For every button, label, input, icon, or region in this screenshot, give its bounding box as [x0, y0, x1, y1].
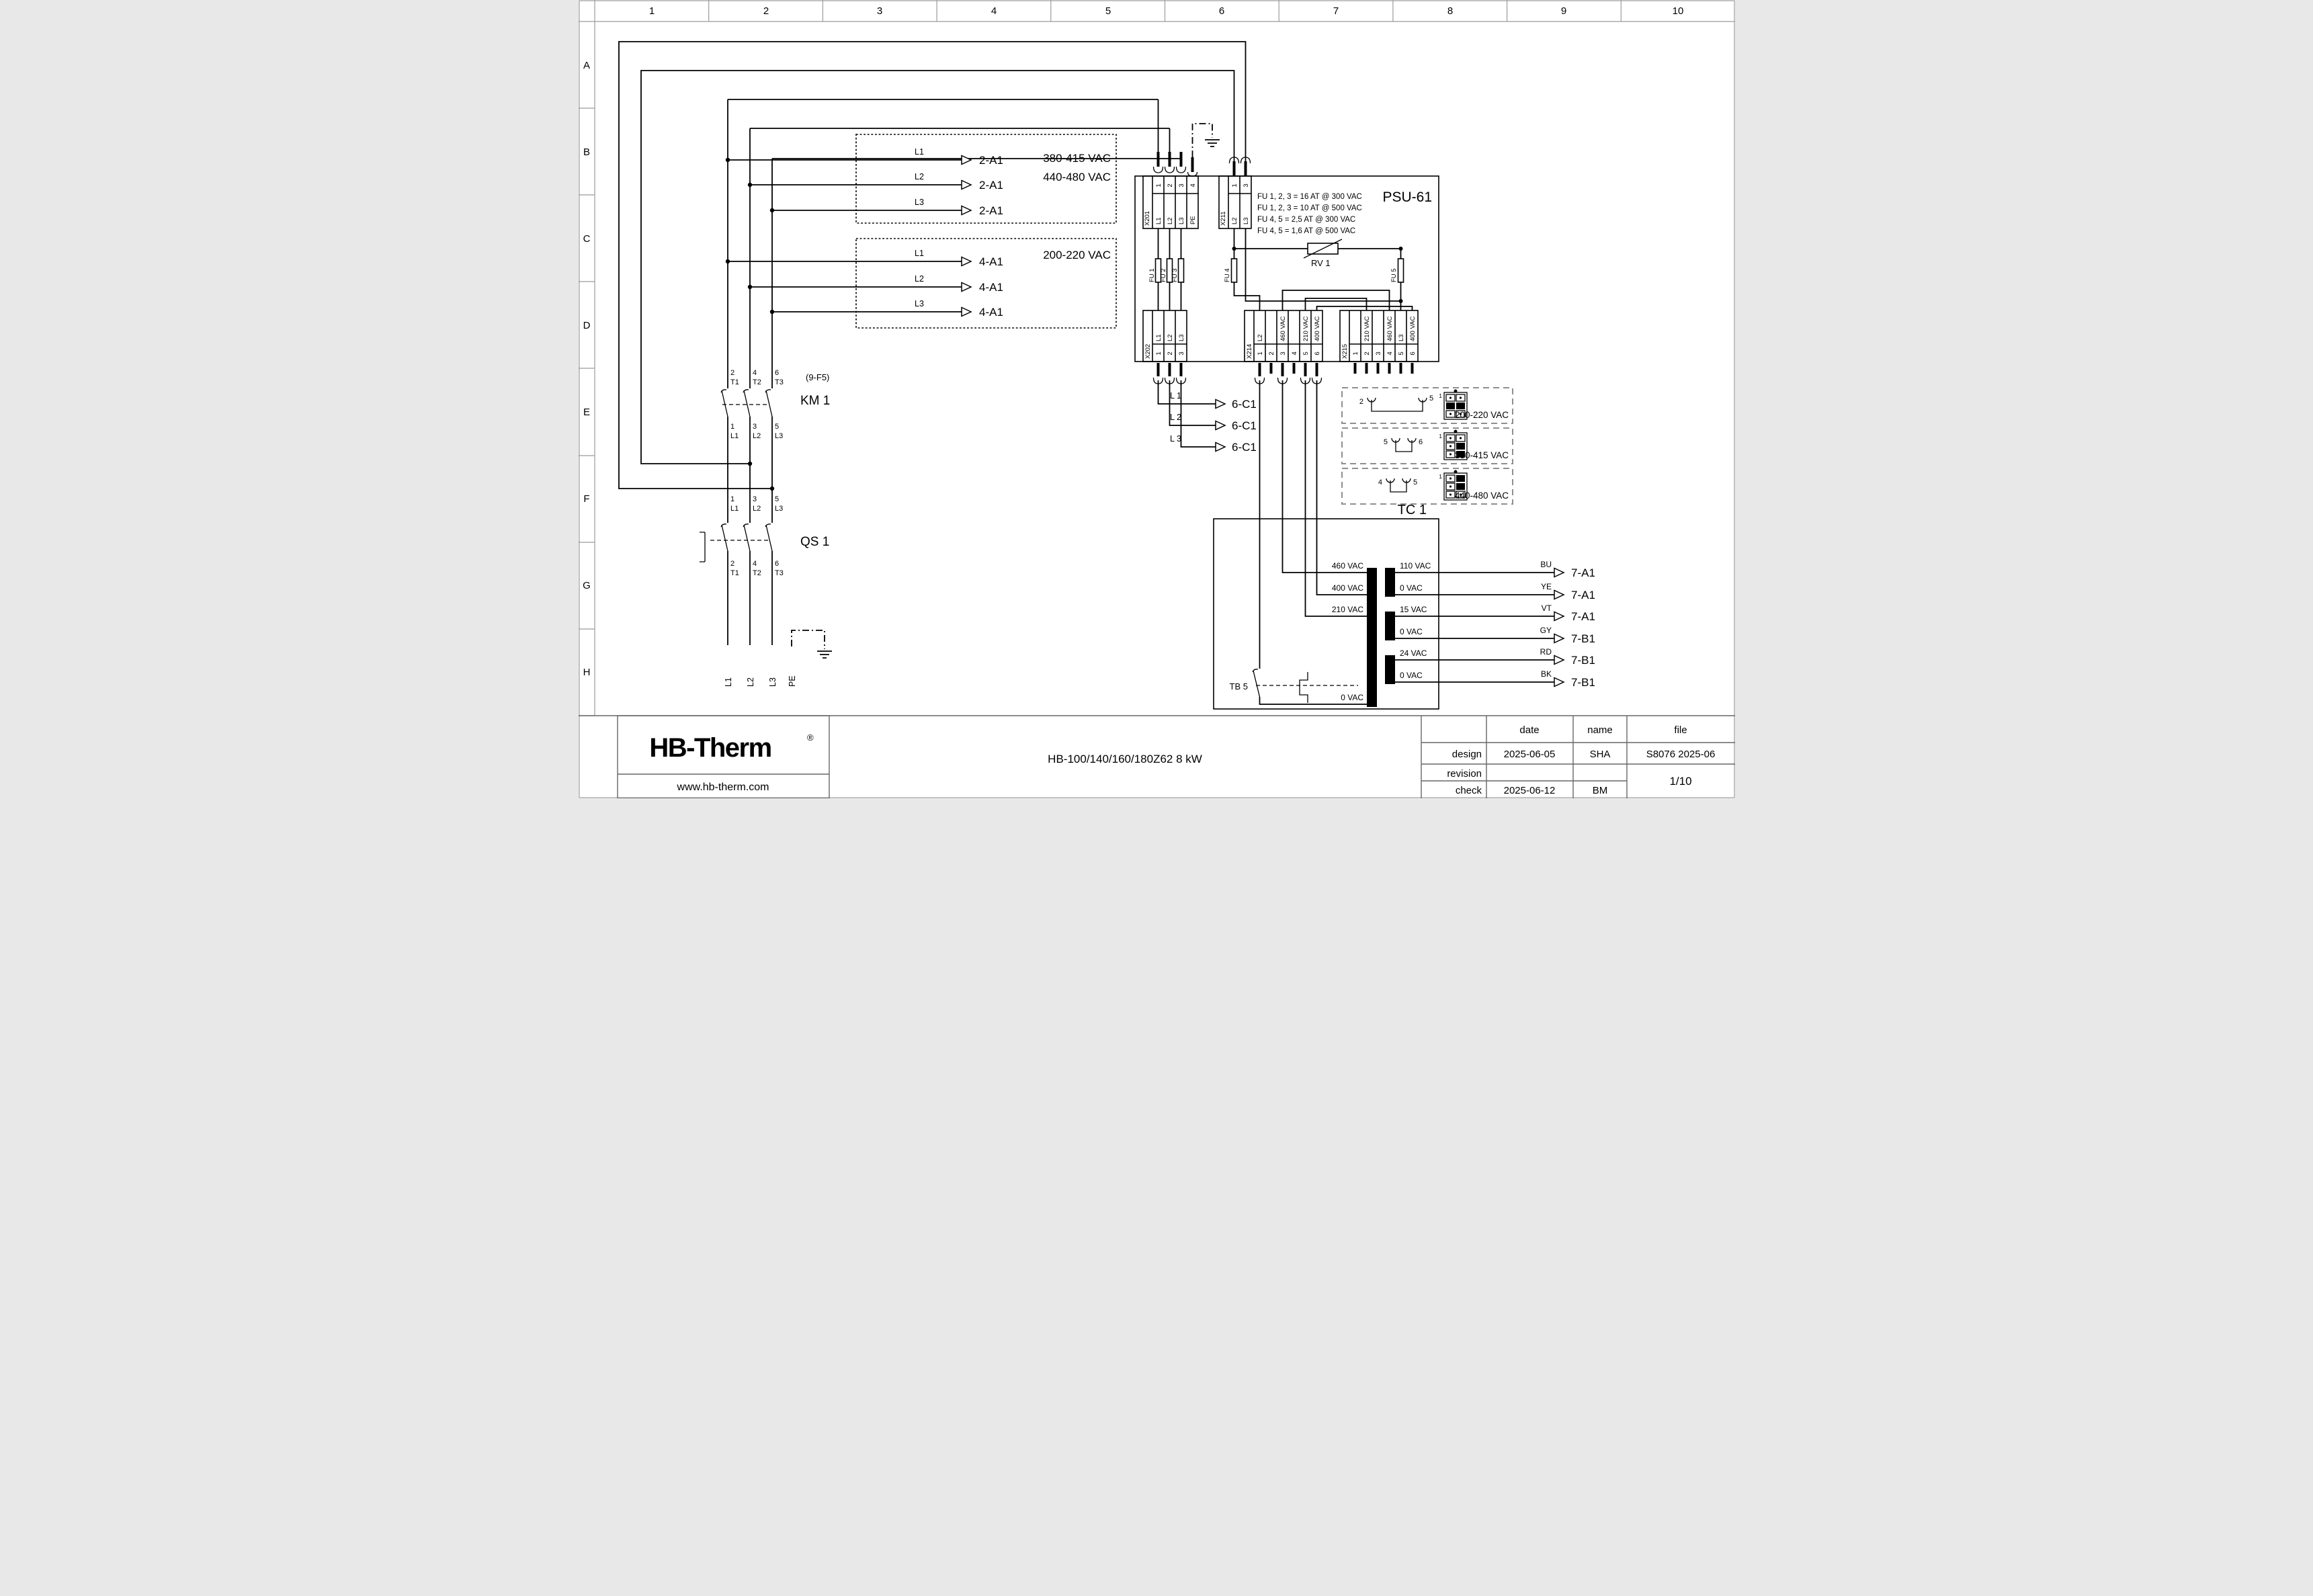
ref-box-4a1: L1 L2 L3 4-A1 4-A1 4-A1 200-220 VAC [856, 239, 1116, 328]
target-ref: 6-C1 [1232, 419, 1257, 432]
jumper-pin: 5 [1413, 478, 1417, 487]
pin-number: 1 [1155, 351, 1163, 355]
secondary-tap: 15 VAC [1400, 605, 1427, 614]
wire-color: GY [1540, 626, 1551, 635]
col-label-9: 9 [1560, 5, 1566, 17]
col-label-1: 1 [648, 5, 654, 17]
line-label: L 2 [1170, 413, 1181, 422]
secondary-tap: 110 VAC [1400, 561, 1431, 571]
pin-number: 4 [1291, 351, 1298, 355]
page-number: 1/10 [1669, 775, 1691, 788]
jumper-pin: 5 [1383, 438, 1387, 446]
qs1-pin-label: T2 [753, 569, 761, 577]
row-label-d: D [583, 320, 590, 331]
pin-number: 3 [1243, 183, 1250, 187]
line-label: L2 [915, 172, 924, 181]
jumper-voltage: 440-480 VAC [1454, 491, 1508, 501]
col-label-3: 3 [876, 5, 882, 17]
pin-label: 460 VAC [1386, 317, 1394, 341]
bridge-210 [1305, 298, 1366, 310]
tb5-label: TB 5 [1229, 681, 1247, 691]
target-ref: 7-A1 [1571, 589, 1595, 601]
primary-tap: 400 VAC [1331, 583, 1363, 593]
line-label: L3 [915, 198, 924, 207]
fuse-note: FU 4, 5 = 1,6 AT @ 500 VAC [1257, 227, 1355, 235]
wire-210 [1305, 380, 1367, 616]
pin-label: L2 [1231, 217, 1238, 224]
qs1-pin-label: L3 [775, 505, 783, 513]
file-value: S8076 2025-06 [1646, 749, 1715, 760]
transformer-tc1: TC 1 460 VAC 400 VAC 210 VAC 0 VAC TB 5 … [1214, 503, 1554, 709]
qs1-pin: 4 [753, 560, 757, 568]
km1-pin: 4 [753, 369, 757, 377]
pin-number: 2 [1363, 351, 1371, 355]
fuse-label: FU 5 [1390, 268, 1398, 282]
line-label: L1 [915, 147, 924, 157]
km1-pin-label: L2 [753, 432, 761, 440]
pin-label: L2 [1257, 334, 1264, 341]
title-block: HB-Therm ® www.hb-therm.com HB-100/140/1… [579, 716, 1735, 798]
line-label: L1 [915, 249, 924, 258]
pin-number: 1 [1352, 351, 1359, 355]
col-name: name [1587, 724, 1613, 736]
pin-number: 2 [1167, 351, 1174, 355]
tc1-label: TC 1 [1397, 503, 1426, 517]
pin-label: L3 [1178, 334, 1185, 341]
jumper-pin1: 1 [1439, 433, 1442, 439]
pin-number: 6 [1314, 351, 1321, 355]
primary-tap: 0 VAC [1341, 693, 1363, 702]
supply-pe-label: PE [788, 675, 797, 687]
pin-label: 460 VAC [1279, 317, 1287, 341]
row-label-h: H [583, 667, 590, 678]
strip-name: X202 [1144, 344, 1152, 359]
km1-pin-label: L3 [775, 432, 783, 440]
fuse-note: FU 4, 5 = 2,5 AT @ 300 VAC [1257, 216, 1355, 224]
pin-number: 1 [1155, 183, 1163, 187]
jumper-box-200-220: 2 5 1 200-220 VAC [1342, 388, 1513, 423]
row-label-c: C [583, 233, 590, 245]
line-label: L 3 [1170, 434, 1181, 444]
outputs-7a1-7b1: BU YE VT GY RD BK 7-A1 7-A1 7-A1 7-B1 7-… [1540, 560, 1595, 689]
pin-number: 3 [1279, 351, 1287, 355]
terminal-strip-x201: X201 1 2 3 4 L1 L2 L3 PE [1143, 176, 1198, 228]
strip-name: X215 [1341, 344, 1349, 359]
km1-pin: 1 [730, 423, 734, 431]
col-file: file [1674, 724, 1687, 736]
pin-number: 3 [1178, 351, 1185, 355]
km1-pin: 6 [775, 369, 779, 377]
pin-number: 3 [1375, 351, 1382, 355]
pin-label: L2 [1167, 334, 1174, 341]
pin-number: 5 [1398, 351, 1405, 355]
target-ref: 7-B1 [1571, 654, 1595, 667]
terminal-strip-x211: X211 1 3 L2 L3 [1219, 176, 1251, 228]
line-label: L2 [915, 274, 924, 284]
check-date: 2025-06-12 [1503, 785, 1555, 796]
qs1-pin-label: T3 [775, 569, 784, 577]
pin-number: 2 [1167, 183, 1174, 187]
logo: HB-Therm [649, 733, 771, 763]
doc-title: HB-100/140/160/180Z62 8 kW [1048, 753, 1202, 765]
psu-title: PSU-61 [1382, 190, 1432, 205]
jumper-voltage: 380-415 VAC [1454, 450, 1508, 460]
qs1-pin-label: T1 [730, 569, 739, 577]
target-ref: 4-A1 [979, 255, 1003, 268]
secondary-tap: 0 VAC [1400, 671, 1423, 680]
schematic-sheet: 1 2 3 4 5 6 7 8 9 10 A B C D E F G H [579, 0, 1735, 798]
target-ref: 4-A1 [979, 306, 1003, 319]
schematic-svg: 1 2 3 4 5 6 7 8 9 10 A B C D E F G H [579, 0, 1735, 798]
qs1-pin: 1 [730, 495, 734, 503]
strip-name: X214 [1246, 344, 1253, 359]
km1-pin: 3 [753, 423, 757, 431]
psu-61-unit: PSU-61 FU 1, 2, 3 = 16 AT @ 300 VAC FU 1… [1135, 176, 1439, 362]
supply-l1-label: L1 [724, 677, 733, 687]
row-label-f: F [583, 493, 589, 505]
row-label-e: E [583, 407, 589, 418]
jumper-pin: 6 [1419, 438, 1423, 446]
pin-number: 6 [1409, 351, 1417, 355]
col-label-8: 8 [1447, 5, 1452, 17]
target-ref: 2-A1 [979, 154, 1003, 167]
km1-pin-label: T3 [775, 378, 784, 386]
strip-name: X211 [1220, 212, 1227, 226]
contactor-km1: 2 T1 4 T2 6 T3 1 L1 3 L2 5 L3 (9-F5) KM … [721, 369, 830, 440]
pin-label: 400 VAC [1409, 317, 1417, 341]
wire-color: VT [1541, 603, 1552, 613]
col-date: date [1519, 724, 1539, 736]
km1-pin-label: L1 [730, 432, 739, 440]
pin-label: L3 [1178, 217, 1185, 224]
pin-number: 5 [1302, 351, 1310, 355]
rv1-label: RV 1 [1311, 258, 1331, 268]
km1-pin-label: T1 [730, 378, 739, 386]
fuse-label: FU 4 [1224, 268, 1231, 282]
fuse-note: FU 1, 2, 3 = 10 AT @ 500 VAC [1257, 204, 1362, 212]
disconnect-switch-qs1: 1 L1 3 L2 5 L3 2 T1 4 T2 6 T3 QS 1 [700, 495, 829, 577]
target-ref: 7-A1 [1571, 566, 1595, 579]
supply-labels: L1 L2 L3 PE [724, 675, 797, 687]
primary-tap: 210 VAC [1331, 605, 1363, 614]
fuse-label: FU 2 [1160, 268, 1167, 282]
pin-label: PE [1189, 216, 1197, 224]
target-ref: 2-A1 [979, 179, 1003, 192]
secondary-tap: 0 VAC [1400, 627, 1423, 636]
target-ref: 7-A1 [1571, 610, 1595, 623]
col-label-6: 6 [1218, 5, 1224, 17]
terminal-strip-x214: X214 1 2 3 4 5 6 L2 460 VAC 210 VAC 400 … [1245, 310, 1322, 362]
supply-l3-label: L3 [768, 677, 777, 687]
pin-number: 4 [1189, 183, 1197, 187]
fuse-label: FU 3 [1171, 268, 1179, 282]
terminal-strip-x215: X215 1 2 3 4 5 6 210 VAC 460 VAC L3 400 … [1340, 310, 1418, 362]
fuse-fu4: FU 4 [1224, 228, 1260, 310]
wire-color: YE [1540, 582, 1551, 591]
pin-label: L1 [1155, 334, 1163, 341]
km1-pin-label: T2 [753, 378, 761, 386]
voltage-range: 200-220 VAC [1043, 249, 1111, 261]
bridge-460 [1282, 290, 1389, 310]
row-check: check [1455, 785, 1482, 796]
supply-l2-label: L2 [746, 677, 755, 687]
strip-name: X201 [1144, 211, 1151, 226]
target-ref: 7-B1 [1571, 676, 1595, 689]
target-ref: 6-C1 [1232, 441, 1257, 454]
km1-pin: 5 [775, 423, 779, 431]
km1-pin: 2 [730, 369, 734, 377]
primary-tap: 460 VAC [1331, 561, 1363, 571]
jumper-box-440-480: 4 5 1 440-480 VAC [1342, 468, 1513, 504]
col-label-4: 4 [991, 5, 996, 17]
target-ref: 7-B1 [1571, 632, 1595, 645]
km1-label: KM 1 [800, 394, 830, 408]
qs1-pin-label: L2 [753, 505, 761, 513]
terminal-strip-x202: X202 1 2 3 L1 L2 L3 [1143, 310, 1187, 362]
qs1-pin: 6 [775, 560, 779, 568]
row-label-b: B [583, 146, 589, 158]
secondary-tap: 24 VAC [1400, 648, 1427, 658]
bridge-400 [1316, 306, 1412, 310]
varistor-rv1: RV 1 [1232, 239, 1402, 268]
row-label-a: A [583, 60, 589, 71]
wire-color: BU [1540, 560, 1552, 569]
fuse-label: FU 1 [1148, 268, 1156, 282]
pin-number: 4 [1386, 351, 1394, 355]
voltage-range: 440-480 VAC [1043, 171, 1111, 183]
pin-label: L3 [1243, 217, 1250, 224]
connector-symbols-top [1153, 152, 1250, 176]
pin-number: 1 [1257, 351, 1264, 355]
pin-number: 2 [1268, 351, 1275, 355]
line-label: L 1 [1170, 391, 1181, 401]
row-label-g: G [583, 580, 591, 591]
jumper-pin: 5 [1429, 394, 1433, 403]
website: www.hb-therm.com [676, 782, 769, 793]
wire-color: RD [1540, 647, 1552, 657]
jumper-voltage: 200-220 VAC [1454, 410, 1508, 420]
qs1-pin: 2 [730, 560, 734, 568]
design-name: SHA [1589, 749, 1610, 760]
pin-label: L3 [1398, 334, 1405, 341]
fuse-note: FU 1, 2, 3 = 16 AT @ 300 VAC [1257, 193, 1362, 201]
wire-color: BK [1540, 669, 1551, 679]
pin-label: 210 VAC [1302, 317, 1310, 341]
pin-number: 3 [1178, 183, 1185, 187]
col-label-5: 5 [1105, 5, 1110, 17]
jumper-pin: 2 [1359, 398, 1363, 406]
qs1-pin-label: L1 [730, 505, 739, 513]
row-design: design [1452, 749, 1481, 760]
secondary-tap: 0 VAC [1400, 583, 1423, 593]
col-label-10: 10 [1672, 5, 1683, 17]
pin-label: L2 [1167, 217, 1174, 224]
qs1-label: QS 1 [800, 535, 829, 549]
outputs-6c1: L 1 L 2 L 3 6-C1 6-C1 6-C1 [1158, 380, 1256, 454]
col-label-2: 2 [763, 5, 768, 17]
row-revision: revision [1447, 768, 1482, 780]
connector-symbols-bottom [1153, 363, 1413, 384]
target-ref: 2-A1 [979, 204, 1003, 217]
wire-460 [1282, 380, 1367, 573]
jumper-pin: 4 [1378, 478, 1382, 487]
voltage-range: 380-415 VAC [1043, 152, 1111, 165]
jumper-box-380-415: 5 6 1 380-415 VAC [1342, 428, 1513, 464]
pin-label: 210 VAC [1363, 317, 1371, 341]
qs1-pin: 5 [775, 495, 779, 503]
km1-ref: (9-F5) [806, 372, 829, 382]
line-label: L3 [915, 299, 924, 308]
pin-label: L1 [1155, 217, 1163, 224]
fuse-fu1-fu2-fu3: FU 1 FU 2 FU 3 [1148, 228, 1184, 310]
target-ref: 6-C1 [1232, 398, 1257, 411]
pin-label: 400 VAC [1314, 317, 1321, 341]
jumper-pin1: 1 [1439, 392, 1442, 399]
target-ref: 4-A1 [979, 281, 1003, 294]
qs1-pin: 3 [753, 495, 757, 503]
check-name: BM [1592, 785, 1607, 796]
pin-number: 1 [1231, 183, 1238, 187]
col-label-7: 7 [1333, 5, 1338, 17]
jumper-pin1: 1 [1439, 473, 1442, 480]
design-date: 2025-06-05 [1503, 749, 1555, 760]
logo-registered-icon: ® [807, 732, 814, 743]
